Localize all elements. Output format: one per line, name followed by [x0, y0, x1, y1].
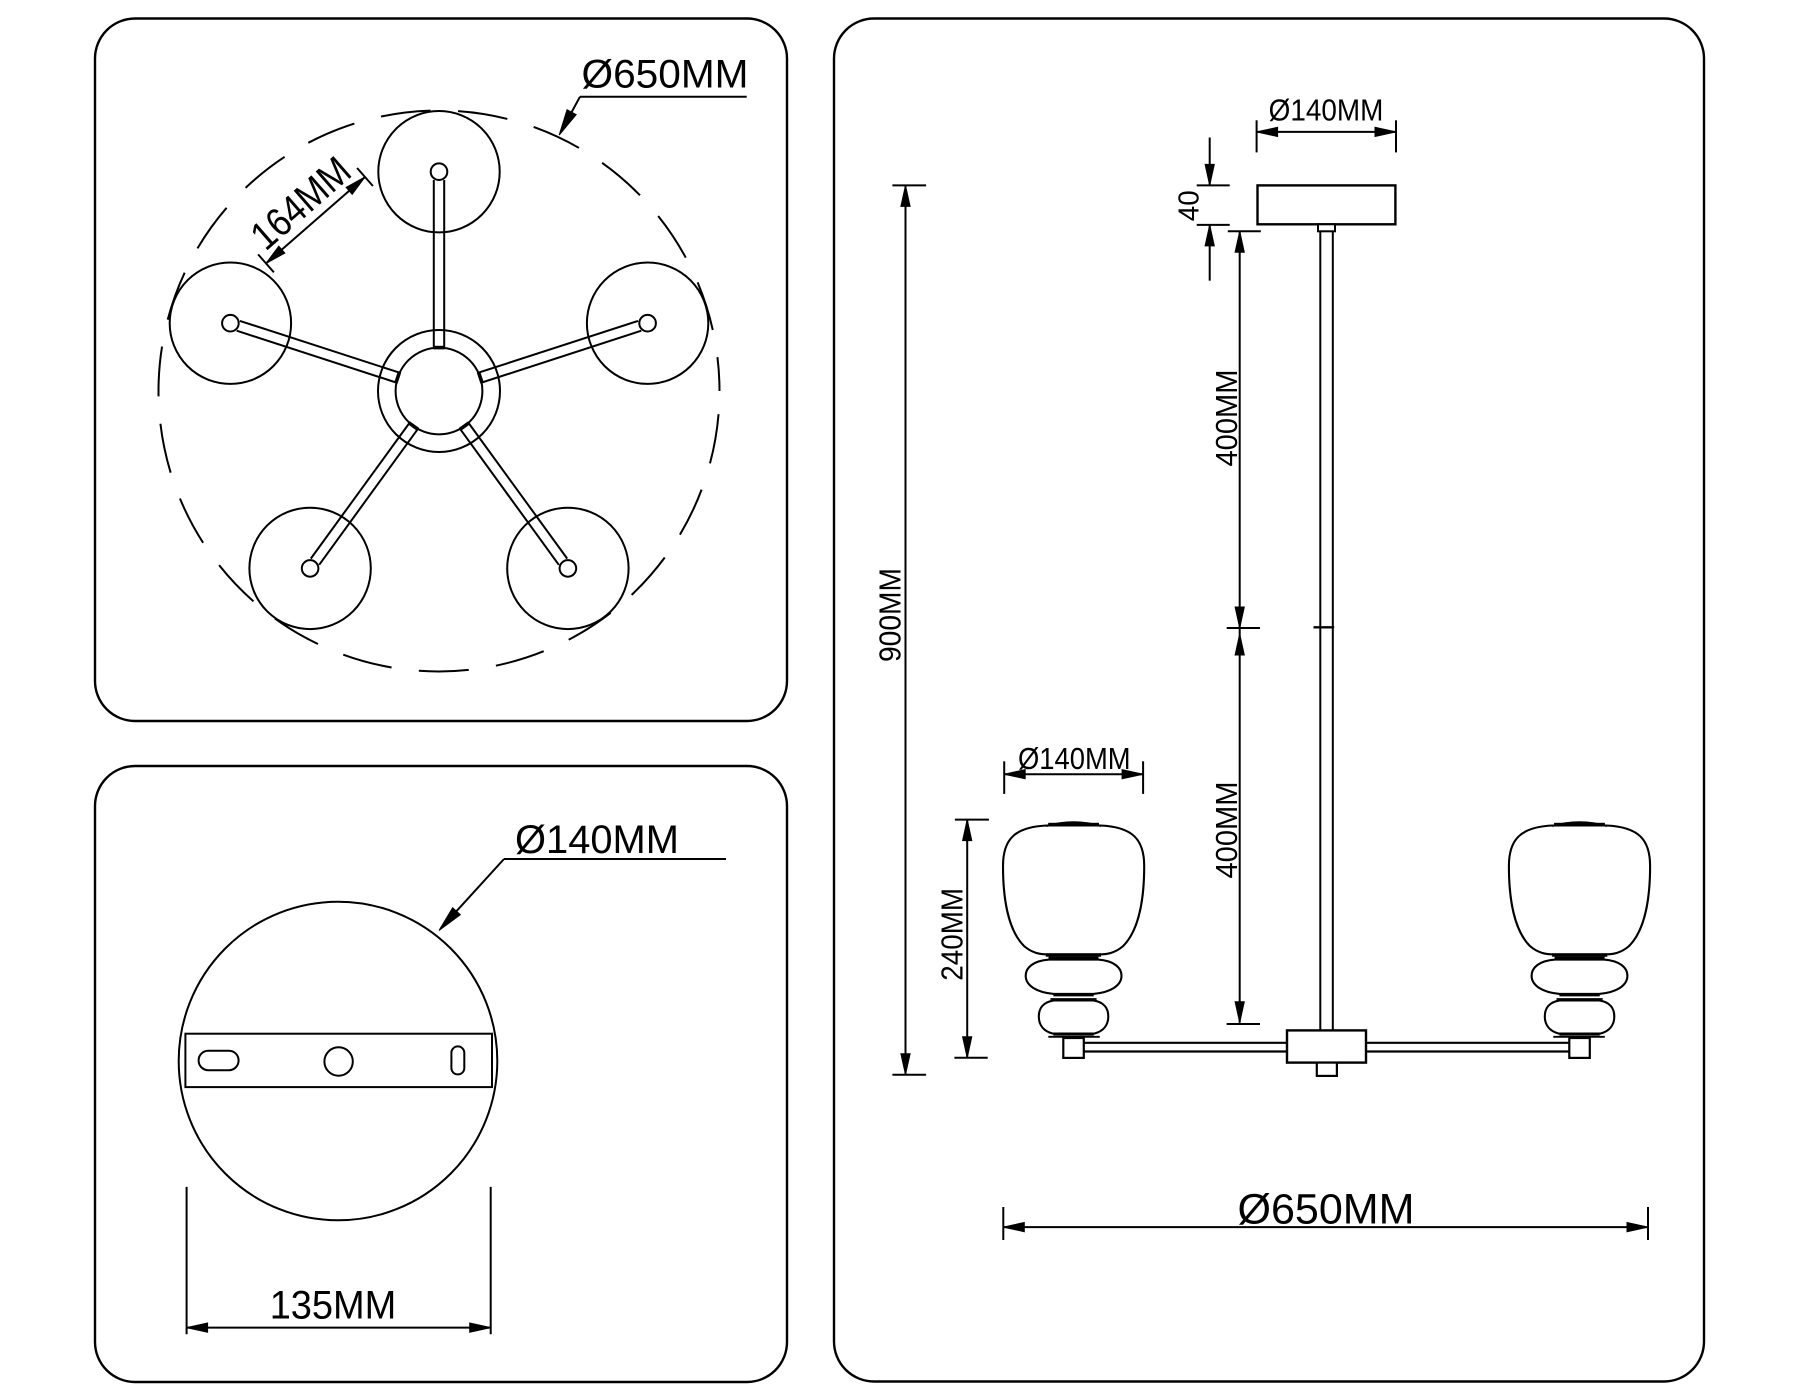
svg-text:900MM: 900MM [872, 568, 907, 662]
svg-text:164MM: 164MM [243, 149, 360, 259]
svg-text:Ø650MM: Ø650MM [1238, 1185, 1415, 1233]
svg-text:Ø140MM: Ø140MM [1018, 741, 1131, 776]
svg-text:400MM: 400MM [1209, 782, 1244, 879]
svg-text:Ø140MM: Ø140MM [1269, 92, 1384, 127]
svg-text:Ø650MM: Ø650MM [582, 53, 749, 97]
svg-text:135MM: 135MM [270, 1284, 397, 1328]
svg-text:240MM: 240MM [935, 888, 970, 981]
svg-text:400MM: 400MM [1209, 370, 1244, 467]
svg-text:Ø140MM: Ø140MM [515, 818, 679, 862]
svg-text:40: 40 [1174, 190, 1206, 221]
